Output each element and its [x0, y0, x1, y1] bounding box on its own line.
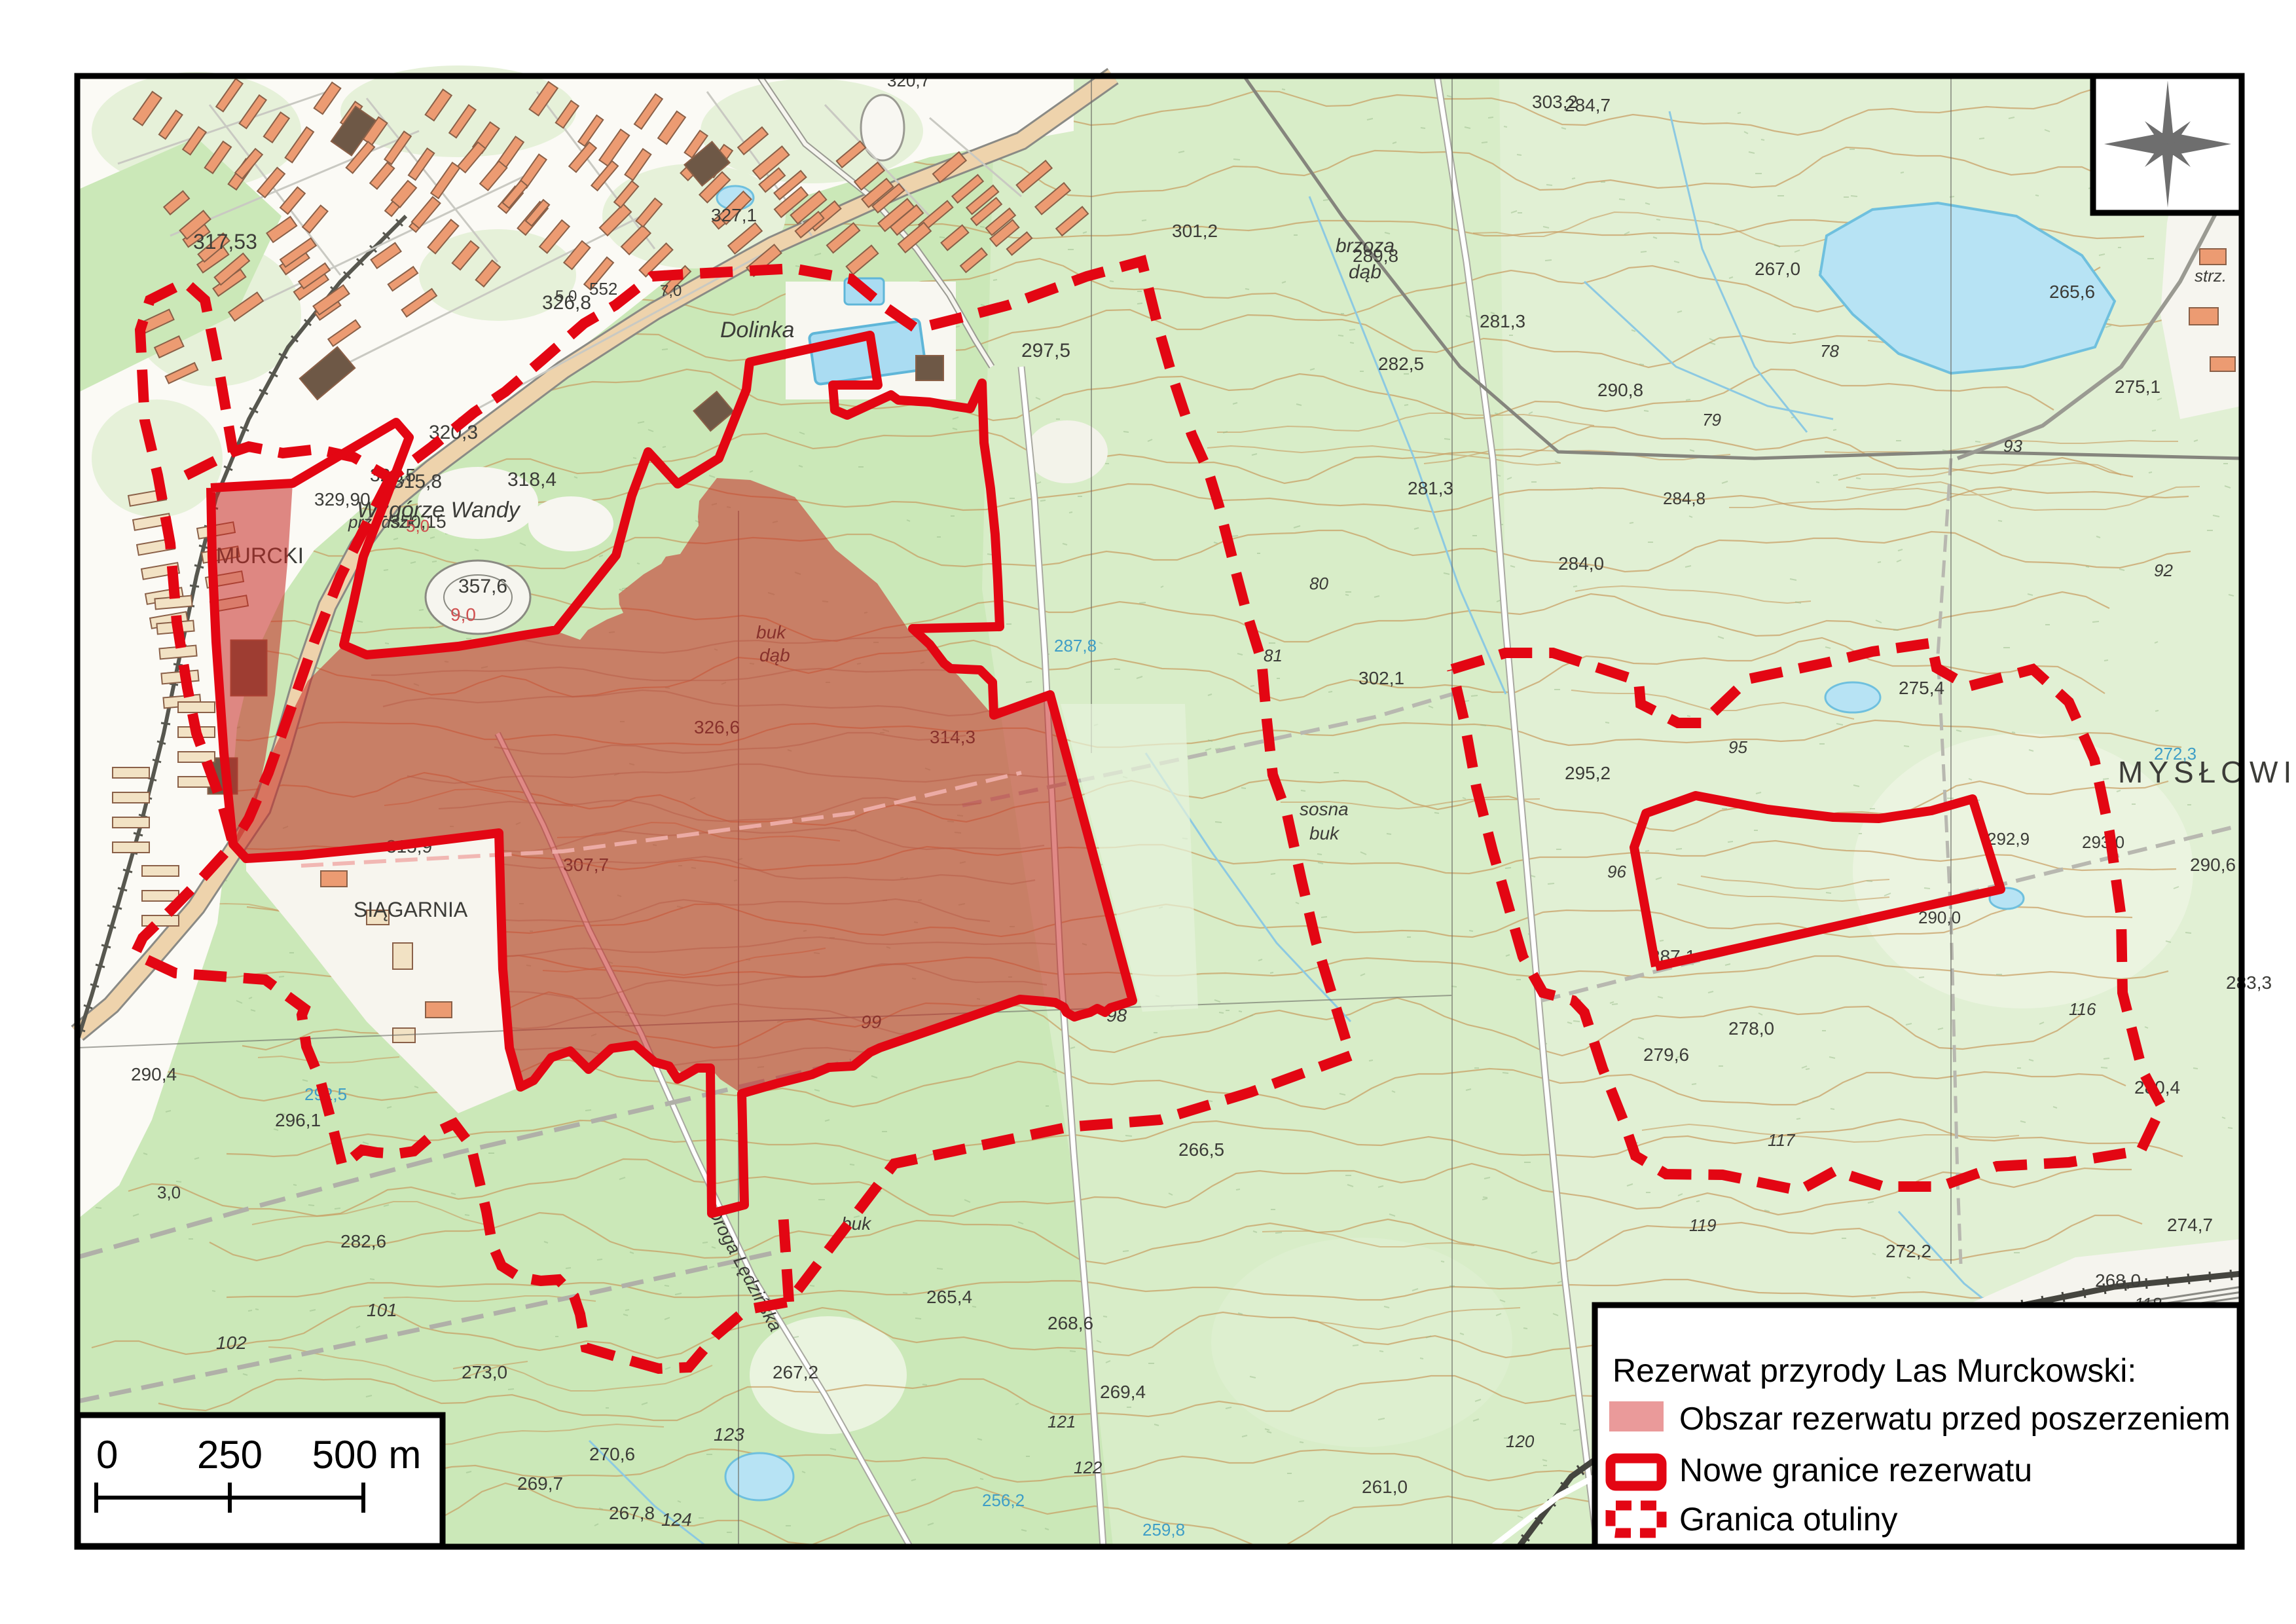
svg-text:290,6: 290,6	[2190, 855, 2236, 875]
svg-text:92: 92	[2154, 561, 2173, 580]
svg-text:279,6: 279,6	[1643, 1044, 1689, 1065]
svg-text:95: 95	[1728, 737, 1747, 757]
svg-text:552: 552	[589, 279, 617, 299]
svg-text:267,0: 267,0	[1755, 259, 1800, 279]
svg-text:79: 79	[1702, 410, 1721, 430]
svg-text:259,8: 259,8	[1142, 1520, 1185, 1540]
svg-text:272,3: 272,3	[2154, 744, 2196, 764]
svg-text:strz.: strz.	[2195, 266, 2227, 286]
svg-text:124: 124	[661, 1509, 692, 1530]
svg-text:500 m: 500 m	[312, 1433, 422, 1477]
svg-text:274,7: 274,7	[2167, 1215, 2213, 1235]
svg-text:3,0: 3,0	[157, 1183, 181, 1202]
svg-text:269,4: 269,4	[1100, 1382, 1146, 1402]
svg-text:269,7: 269,7	[517, 1473, 563, 1494]
svg-text:284,8: 284,8	[1663, 489, 1705, 508]
svg-text:302,1: 302,1	[1358, 668, 1404, 688]
svg-text:290,8: 290,8	[1597, 380, 1643, 400]
svg-text:MYSŁOWIC: MYSŁOWIC	[2118, 755, 2296, 789]
svg-text:SIĄGARNIA: SIĄGARNIA	[354, 898, 468, 921]
svg-text:267,8: 267,8	[609, 1503, 655, 1523]
svg-text:281,3: 281,3	[1408, 478, 1453, 498]
svg-text:284,7: 284,7	[1565, 95, 1611, 115]
svg-text:278,0: 278,0	[1728, 1018, 1774, 1039]
svg-text:122: 122	[1074, 1458, 1102, 1477]
svg-text:267,2: 267,2	[773, 1362, 818, 1382]
svg-text:282,6: 282,6	[340, 1231, 386, 1251]
svg-text:250: 250	[197, 1433, 263, 1477]
svg-text:273,0: 273,0	[462, 1362, 507, 1382]
svg-text:0: 0	[96, 1433, 118, 1477]
svg-text:Dolinka: Dolinka	[720, 318, 794, 342]
svg-text:123: 123	[714, 1424, 744, 1445]
svg-text:120: 120	[1506, 1431, 1535, 1451]
svg-text:101: 101	[367, 1300, 397, 1320]
svg-text:5,0: 5,0	[555, 287, 577, 305]
svg-text:Obszar rezerwatu przed poszerz: Obszar rezerwatu przed poszerzeniem	[1679, 1401, 2231, 1437]
svg-text:275,1: 275,1	[2115, 377, 2160, 397]
svg-text:283,3: 283,3	[2226, 972, 2272, 993]
svg-text:357,6: 357,6	[458, 576, 507, 597]
svg-text:272,2: 272,2	[1886, 1241, 1931, 1261]
svg-text:275,4: 275,4	[1899, 678, 1944, 698]
svg-text:121: 121	[1048, 1412, 1076, 1431]
svg-text:281,3: 281,3	[1480, 311, 1525, 331]
svg-text:117: 117	[1768, 1130, 1796, 1150]
svg-text:289,8: 289,8	[1353, 246, 1398, 266]
svg-text:293,0: 293,0	[2082, 832, 2124, 852]
svg-text:9,0: 9,0	[450, 604, 476, 625]
svg-text:329,90: 329,90	[314, 489, 371, 509]
svg-text:93: 93	[2003, 436, 2022, 456]
svg-text:301,2: 301,2	[1172, 221, 1218, 241]
svg-text:268,0: 268,0	[2095, 1270, 2141, 1291]
svg-text:Nowe granice rezerwatu: Nowe granice rezerwatu	[1679, 1452, 2032, 1488]
svg-text:282,5: 282,5	[1378, 354, 1424, 374]
svg-text:265,4: 265,4	[926, 1287, 972, 1307]
svg-text:292,9: 292,9	[1987, 829, 2030, 849]
svg-text:284,0: 284,0	[1558, 553, 1604, 574]
svg-text:317,53: 317,53	[193, 230, 257, 253]
svg-text:116: 116	[2069, 999, 2096, 1019]
svg-text:Rezerwat przyrody Las Murckows: Rezerwat przyrody Las Murckowski:	[1613, 1352, 2136, 1389]
svg-text:268,6: 268,6	[1048, 1313, 1093, 1333]
svg-text:sosna: sosna	[1300, 799, 1349, 819]
svg-text:287,8: 287,8	[1054, 636, 1097, 655]
svg-text:78: 78	[1820, 341, 1839, 361]
svg-text:119: 119	[1689, 1215, 1716, 1235]
svg-text:261,0: 261,0	[1362, 1477, 1408, 1497]
svg-text:290,4: 290,4	[131, 1064, 177, 1084]
svg-text:266,5: 266,5	[1178, 1139, 1224, 1160]
svg-text:102: 102	[216, 1333, 247, 1353]
svg-text:270,6: 270,6	[589, 1444, 635, 1464]
svg-text:296,1: 296,1	[275, 1110, 321, 1130]
svg-text:81: 81	[1264, 646, 1283, 665]
svg-text:265,6: 265,6	[2049, 282, 2095, 302]
svg-text:327,1: 327,1	[711, 205, 757, 225]
svg-text:318,4: 318,4	[507, 469, 556, 490]
svg-text:96: 96	[1607, 862, 1626, 881]
svg-text:Granica otuliny: Granica otuliny	[1679, 1501, 1898, 1538]
svg-text:buk: buk	[1309, 823, 1340, 843]
svg-text:297,5: 297,5	[1021, 340, 1070, 361]
svg-text:80: 80	[1309, 574, 1328, 593]
svg-text:7,0: 7,0	[660, 282, 682, 300]
svg-text:5,0: 5,0	[406, 516, 429, 536]
svg-text:295,2: 295,2	[1565, 763, 1611, 783]
svg-text:256,2: 256,2	[982, 1490, 1025, 1510]
